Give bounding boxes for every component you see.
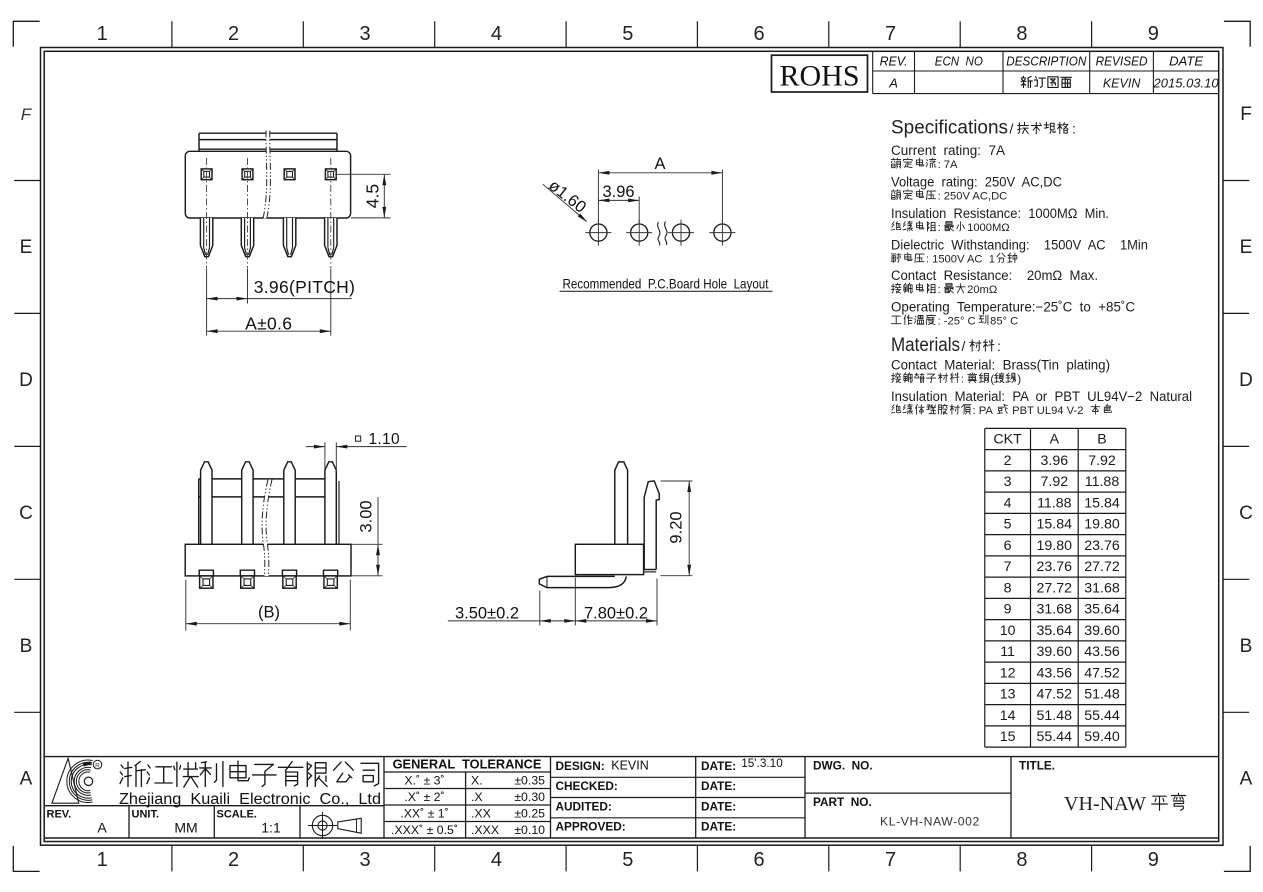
svg-text:TITLE.: TITLE.	[1019, 758, 1055, 772]
svg-text:19.80: 19.80	[1037, 538, 1073, 554]
svg-text:KEVIN: KEVIN	[1103, 77, 1141, 91]
svg-text:: 7A: : 7A	[938, 159, 958, 171]
svg-text:35.64: 35.64	[1037, 623, 1073, 639]
svg-text:±0.35: ±0.35	[514, 773, 545, 787]
svg-text:B: B	[20, 636, 33, 657]
svg-text:A: A	[1240, 769, 1253, 790]
svg-text:7.92: 7.92	[1040, 474, 1068, 490]
svg-text:15: 15	[1000, 729, 1016, 745]
svg-text:Contact Resistance: 20mΩ: Contact Resistance: 20mΩ Max.	[891, 268, 1098, 283]
svg-text:3.50±0.2: 3.50±0.2	[455, 604, 519, 622]
svg-text:(: (	[990, 374, 994, 386]
svg-text:3.96: 3.96	[602, 183, 634, 201]
svg-text:43.56: 43.56	[1084, 644, 1120, 660]
svg-text:35.64: 35.64	[1084, 602, 1120, 618]
svg-text:±0.25: ±0.25	[514, 806, 545, 820]
svg-text:4: 4	[1004, 495, 1012, 511]
svg-text:APPROVED:: APPROVED:	[556, 820, 626, 834]
svg-text:Recommended P.C.Board Hole L: Recommended P.C.Board Hole Layout	[563, 277, 769, 292]
svg-text:12: 12	[1000, 665, 1016, 681]
svg-text:43.56: 43.56	[1037, 665, 1073, 681]
svg-text:9.20: 9.20	[668, 511, 686, 543]
svg-text:15.84: 15.84	[1037, 517, 1073, 533]
svg-text:VH-NAW: VH-NAW	[1064, 793, 1147, 815]
svg-text:51.48: 51.48	[1084, 687, 1120, 703]
svg-text:A: A	[20, 769, 33, 790]
svg-text:6: 6	[1004, 538, 1012, 554]
svg-text:1: 1	[97, 849, 108, 871]
svg-text:/: /	[1010, 121, 1014, 137]
svg-text:2015.03.10: 2015.03.10	[1153, 76, 1220, 91]
svg-text:15.84: 15.84	[1084, 495, 1120, 511]
svg-text:31.68: 31.68	[1084, 580, 1120, 596]
svg-text:39.60: 39.60	[1084, 623, 1120, 639]
svg-text:A±0.6: A±0.6	[245, 313, 292, 333]
svg-text:AUDITED:: AUDITED:	[556, 799, 612, 813]
svg-text:B: B	[1097, 432, 1106, 448]
svg-text:.X: .X	[471, 790, 483, 804]
svg-text:.XX˚ ± 1˚: .XX˚ ± 1˚	[400, 806, 448, 820]
svg-text:±0.30: ±0.30	[514, 790, 545, 804]
svg-text:CKT: CKT	[993, 432, 1022, 448]
svg-text:KL-VH-NAW-002: KL-VH-NAW-002	[880, 815, 980, 829]
svg-text::: :	[997, 338, 1001, 354]
svg-text:.XXX˚ ± 0.5˚: .XXX˚ ± 0.5˚	[391, 823, 458, 837]
svg-text:ECN NO: ECN NO	[935, 55, 983, 69]
svg-text:UNIT.: UNIT.	[132, 809, 160, 821]
svg-text:CHECKED:: CHECKED:	[556, 779, 618, 793]
svg-text:2: 2	[228, 23, 239, 45]
svg-text:1000MΩ: 1000MΩ	[967, 222, 1010, 234]
svg-text:7.92: 7.92	[1088, 453, 1116, 469]
svg-text::: :	[938, 222, 944, 234]
svg-text:DESCRIPTION: DESCRIPTION	[1006, 55, 1087, 69]
svg-text:8: 8	[1016, 849, 1027, 871]
svg-text:E: E	[1240, 237, 1253, 258]
svg-text:Dielectric Withstanding: 1: Dielectric Withstanding: 1500V AC 1Min	[891, 238, 1148, 253]
svg-text:A: A	[888, 76, 898, 91]
svg-text:DATE:: DATE:	[701, 799, 736, 813]
svg-text:R: R	[95, 763, 100, 770]
svg-text:F: F	[21, 105, 33, 124]
svg-text:C: C	[19, 503, 33, 524]
svg-text:5: 5	[622, 849, 633, 871]
svg-text:A: A	[654, 155, 665, 173]
svg-text:Zhejiang Kuaili Electronic: Zhejiang Kuaili Electronic Co., Ltd	[119, 791, 381, 808]
svg-text:3.96(PITCH): 3.96(PITCH)	[254, 277, 356, 297]
svg-text:20mΩ: 20mΩ	[967, 284, 997, 296]
svg-text:10: 10	[1000, 623, 1016, 639]
svg-text::: :	[961, 374, 967, 386]
svg-text:(B): (B)	[258, 604, 280, 622]
svg-text:E: E	[20, 237, 33, 258]
svg-text:DWG. NO.: DWG. NO.	[813, 758, 873, 772]
svg-text:X.˚ ± 3˚: X.˚ ± 3˚	[404, 773, 444, 787]
svg-text:9: 9	[1148, 23, 1159, 45]
svg-text:: 250V AC,DC: : 250V AC,DC	[938, 191, 1008, 203]
svg-text:2: 2	[228, 849, 239, 871]
svg-text:: PA: : PA	[973, 405, 996, 417]
svg-text:11.88: 11.88	[1037, 495, 1072, 511]
svg-text:3: 3	[1004, 474, 1012, 490]
svg-text:31.68: 31.68	[1037, 602, 1073, 618]
svg-text:8: 8	[1004, 580, 1012, 596]
svg-text:Insulation Resistance: 1000M: Insulation Resistance: 1000MΩ Min.	[891, 206, 1109, 221]
svg-text:REVISED: REVISED	[1096, 55, 1148, 69]
svg-text:GENERAL TOLERANCE: GENERAL TOLERANCE	[393, 757, 542, 772]
svg-text:47.52: 47.52	[1084, 665, 1120, 681]
svg-text:23.76: 23.76	[1037, 559, 1073, 575]
svg-text:KEVIN: KEVIN	[611, 759, 649, 773]
svg-text:6: 6	[754, 23, 765, 45]
svg-text:Current rating: 7A: Current rating: 7A	[891, 143, 1005, 158]
svg-text:X.: X.	[471, 773, 483, 787]
svg-text:3: 3	[359, 849, 370, 871]
svg-text:3.00: 3.00	[358, 500, 376, 532]
svg-text:DESIGN:: DESIGN:	[556, 759, 605, 773]
svg-text:A: A	[97, 820, 107, 836]
svg-text:D: D	[1239, 370, 1253, 391]
svg-text:13: 13	[1000, 687, 1016, 703]
svg-text:3: 3	[359, 23, 370, 45]
svg-text:.XX: .XX	[471, 806, 491, 820]
svg-text:/: /	[962, 338, 966, 354]
svg-text:DATE: DATE	[1169, 55, 1204, 69]
svg-text:5: 5	[622, 23, 633, 45]
svg-text:6: 6	[754, 849, 765, 871]
svg-text:): )	[1017, 374, 1021, 386]
svg-text:Operating Temperature:−25˚C: Operating Temperature:−25˚C to +85˚C	[891, 300, 1135, 315]
svg-text:9: 9	[1004, 602, 1012, 618]
svg-text:MM: MM	[174, 820, 197, 836]
svg-text:SCALE.: SCALE.	[217, 809, 257, 821]
svg-text:3.96: 3.96	[1040, 453, 1068, 469]
svg-text:2: 2	[1004, 453, 1012, 469]
svg-text:4: 4	[491, 849, 502, 871]
svg-text:23.76: 23.76	[1084, 538, 1120, 554]
svg-text::: :	[938, 284, 944, 296]
svg-text:Materials: Materials	[891, 335, 960, 356]
svg-text:8: 8	[1016, 23, 1027, 45]
svg-text:ROHS: ROHS	[780, 60, 860, 93]
svg-text:47.52: 47.52	[1037, 687, 1073, 703]
svg-text:1.10: 1.10	[369, 431, 400, 448]
svg-text:D: D	[19, 370, 33, 391]
svg-text:1:1: 1:1	[261, 820, 281, 836]
svg-text:55.44: 55.44	[1037, 729, 1073, 745]
svg-text:DATE:: DATE:	[701, 759, 736, 773]
svg-text:DATE:: DATE:	[701, 820, 736, 834]
svg-text::: :	[1072, 121, 1076, 137]
svg-text:11.88: 11.88	[1085, 474, 1120, 490]
svg-text:1: 1	[97, 23, 108, 45]
svg-text:.X˚ ± 2˚: .X˚ ± 2˚	[404, 790, 444, 804]
svg-text:Specifications: Specifications	[891, 118, 1008, 139]
svg-text:F: F	[1240, 104, 1252, 125]
svg-text:15'.3.10: 15'.3.10	[741, 756, 783, 770]
svg-text:A: A	[1050, 432, 1060, 448]
svg-text:4.5: 4.5	[363, 184, 383, 208]
svg-text:14: 14	[1000, 708, 1016, 724]
svg-text:B: B	[1240, 636, 1253, 657]
svg-text:27.72: 27.72	[1084, 559, 1120, 575]
svg-text:PART NO.: PART NO.	[813, 795, 872, 809]
svg-text:39.60: 39.60	[1037, 644, 1073, 660]
svg-text:Contact Material: Brass(Tin: Contact Material: Brass(Tin plating)	[891, 358, 1110, 373]
svg-text:7.80±0.2: 7.80±0.2	[584, 604, 648, 622]
svg-text:7: 7	[885, 23, 896, 45]
svg-text:51.48: 51.48	[1037, 708, 1073, 724]
svg-text:Insulation Material: PA or: Insulation Material: PA or PBT UL94V−2 N…	[891, 389, 1192, 404]
svg-text:27.72: 27.72	[1037, 580, 1073, 596]
svg-text:9: 9	[1148, 849, 1159, 871]
svg-text:11: 11	[1000, 644, 1015, 660]
svg-text:7: 7	[885, 849, 896, 871]
svg-text:55.44: 55.44	[1084, 708, 1120, 724]
svg-text:C: C	[1239, 503, 1253, 524]
svg-text:: 1500V AC 1: : 1500V AC 1	[926, 254, 995, 266]
svg-text:59.40: 59.40	[1084, 729, 1120, 745]
svg-text:: -25° C: : -25° C	[938, 316, 979, 328]
svg-text:±0.10: ±0.10	[514, 823, 545, 837]
svg-text:19.80: 19.80	[1084, 517, 1120, 533]
svg-text:DATE:: DATE:	[701, 779, 736, 793]
svg-text:7: 7	[1004, 559, 1012, 575]
svg-text:REV.: REV.	[880, 55, 908, 69]
svg-text:Voltage rating: 250V AC,DC: Voltage rating: 250V AC,DC	[891, 175, 1062, 190]
svg-text:REV.: REV.	[47, 809, 72, 821]
svg-text:.XXX: .XXX	[471, 823, 499, 837]
svg-text:5: 5	[1004, 517, 1012, 533]
svg-text:4: 4	[491, 23, 502, 45]
svg-text:PBT UL94 V-2: PBT UL94 V-2	[1009, 405, 1087, 417]
svg-text:85° C: 85° C	[990, 316, 1018, 328]
